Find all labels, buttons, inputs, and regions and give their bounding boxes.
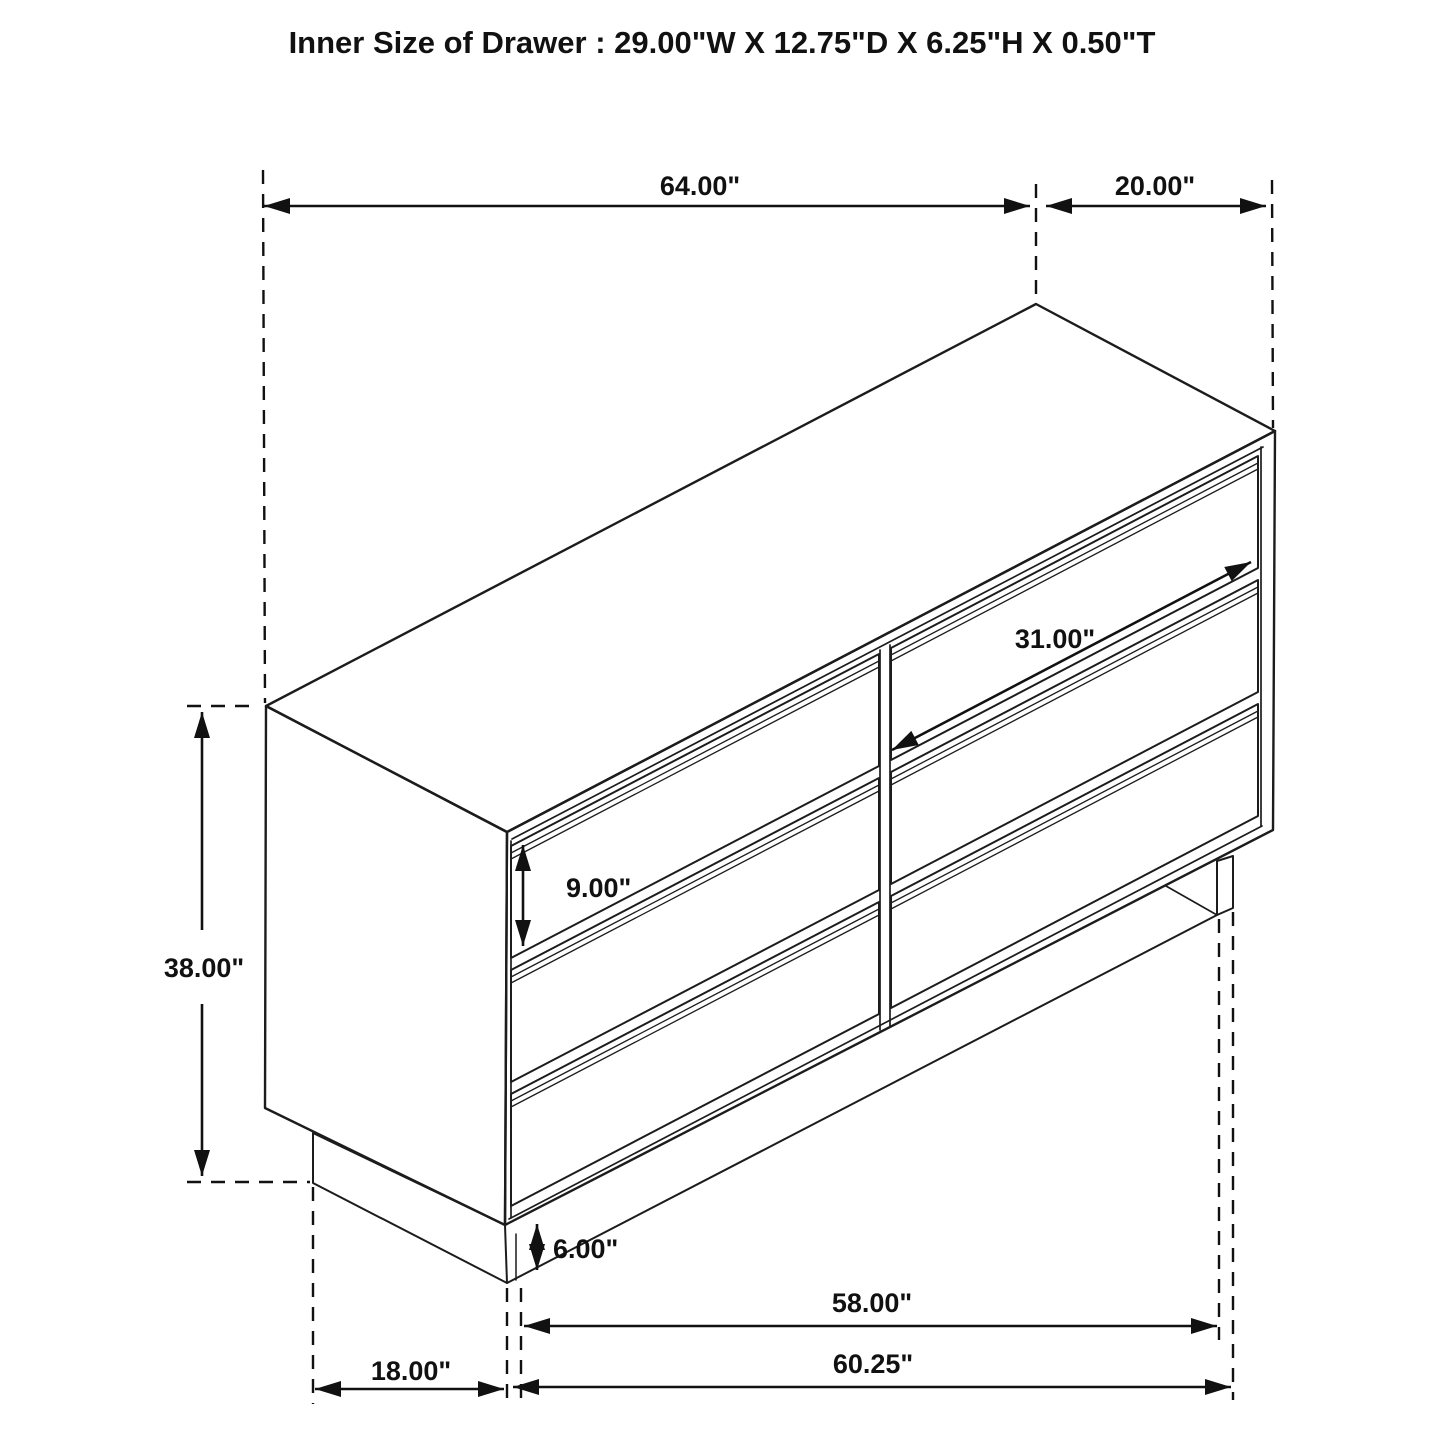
extension-line-front-right-top (1272, 180, 1273, 428)
left-side-panel (265, 706, 507, 1225)
plinth-left-face (313, 1133, 507, 1283)
drawer-groove-line (511, 909, 879, 1101)
drawer-groove-line (511, 661, 879, 853)
dim-top-width: 64.00" (264, 171, 1030, 206)
dimension-annotations: 64.00" 20.00" 38.00" 31.00" 9.00" 6.00" … (164, 171, 1266, 1389)
extension-line-back-left-top (263, 170, 265, 703)
right-leg (1217, 856, 1233, 915)
dresser-dimension-diagram-svg: Inner Size of Drawer : 29.00"W X 12.75"D… (0, 0, 1445, 1445)
dim-drawer-front-height-label: 9.00" (566, 873, 631, 903)
dim-height: 38.00" (164, 712, 244, 1176)
dim-base-width-label: 58.00" (832, 1288, 912, 1318)
drawer-groove-line (511, 915, 879, 1107)
dresser-drawing (265, 304, 1275, 1283)
dim-drawer-width-arrow (892, 562, 1251, 750)
top-face (266, 304, 1275, 832)
drawer-groove-line (891, 711, 1258, 903)
dim-height-label: 38.00" (164, 953, 244, 983)
drawer-groove-line (891, 587, 1258, 779)
page-title: Inner Size of Drawer : 29.00"W X 12.75"D… (289, 25, 1156, 60)
dim-side-depth-label: 20.00" (1115, 171, 1195, 201)
dim-overall-base-width-label: 60.25" (833, 1349, 913, 1379)
drawer-groove-line (891, 717, 1258, 909)
dim-side-depth: 20.00" (1046, 171, 1266, 206)
leg-brace-line (1166, 886, 1217, 915)
extension-lines (187, 170, 1273, 1404)
dim-side-base-depth: 18.00" (315, 1356, 504, 1389)
dim-drawer-width-label: 31.00" (1015, 624, 1095, 654)
dim-side-base-depth-label: 18.00" (371, 1356, 451, 1386)
dim-drawer-width: 31.00" (892, 562, 1251, 750)
dim-base-clearance-label: 6.00" (553, 1234, 618, 1264)
drawer-groove-line (891, 593, 1258, 785)
dim-overall-base-width: 60.25" (513, 1349, 1231, 1387)
dim-drawer-front-height: 9.00" (523, 845, 631, 946)
base-bottom-edge-line (507, 915, 1217, 1283)
dimension-diagram-page: Inner Size of Drawer : 29.00"W X 12.75"D… (0, 0, 1445, 1445)
dim-top-width-label: 64.00" (660, 171, 740, 201)
drawer-groove-line (511, 667, 879, 859)
dim-base-width: 58.00" (524, 1288, 1217, 1326)
